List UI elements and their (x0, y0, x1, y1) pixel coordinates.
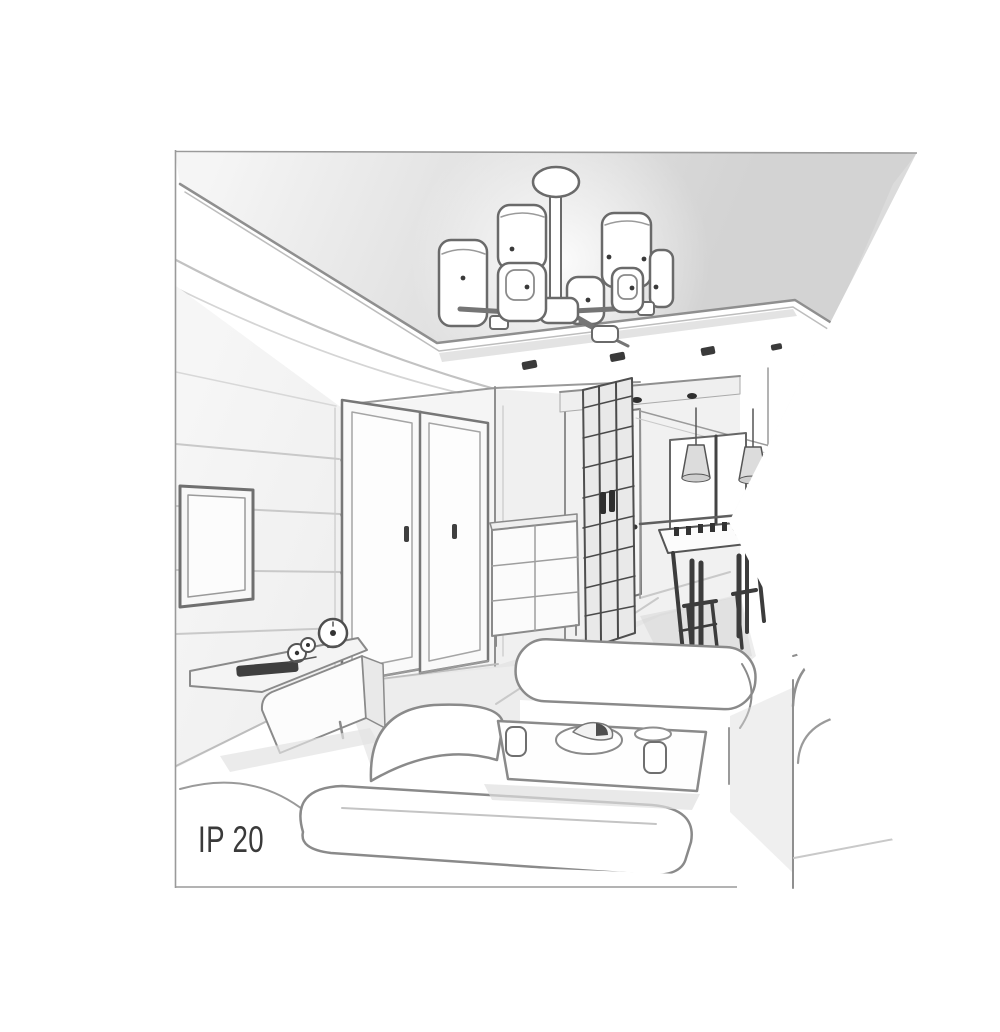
door-handle-icon (452, 524, 457, 539)
door-leaf (429, 423, 480, 661)
door-leaf (352, 412, 412, 669)
door-handle-icon (404, 526, 409, 542)
wardrobe-handle-icon (609, 490, 615, 512)
spotlight-icon (632, 397, 642, 403)
product-illustration: IP 20 (40, 16, 1000, 1016)
coffee-table (484, 721, 706, 810)
drinking-glass (644, 742, 666, 773)
interior-door-2 (420, 412, 488, 673)
ip-rating-label: IP 20 (198, 819, 264, 860)
shade-icon (650, 250, 673, 307)
cup (506, 727, 526, 756)
chandelier-stem (550, 192, 561, 300)
right-sofa (793, 566, 920, 888)
table-clock (319, 619, 347, 647)
shade-mouth (506, 270, 534, 300)
room-sketch: IP 20 (40, 16, 1000, 1016)
ceiling-canopy (533, 167, 579, 197)
lattice-wardrobe (583, 378, 635, 649)
tv-screen (188, 495, 245, 597)
spotlight-icon (687, 393, 697, 399)
drawer-chest (490, 514, 579, 646)
side-plate (635, 728, 671, 741)
sofa-back (514, 638, 756, 710)
wall-tv (180, 486, 253, 607)
wardrobe-handle-icon (600, 492, 606, 514)
sideboard-side (362, 656, 385, 728)
